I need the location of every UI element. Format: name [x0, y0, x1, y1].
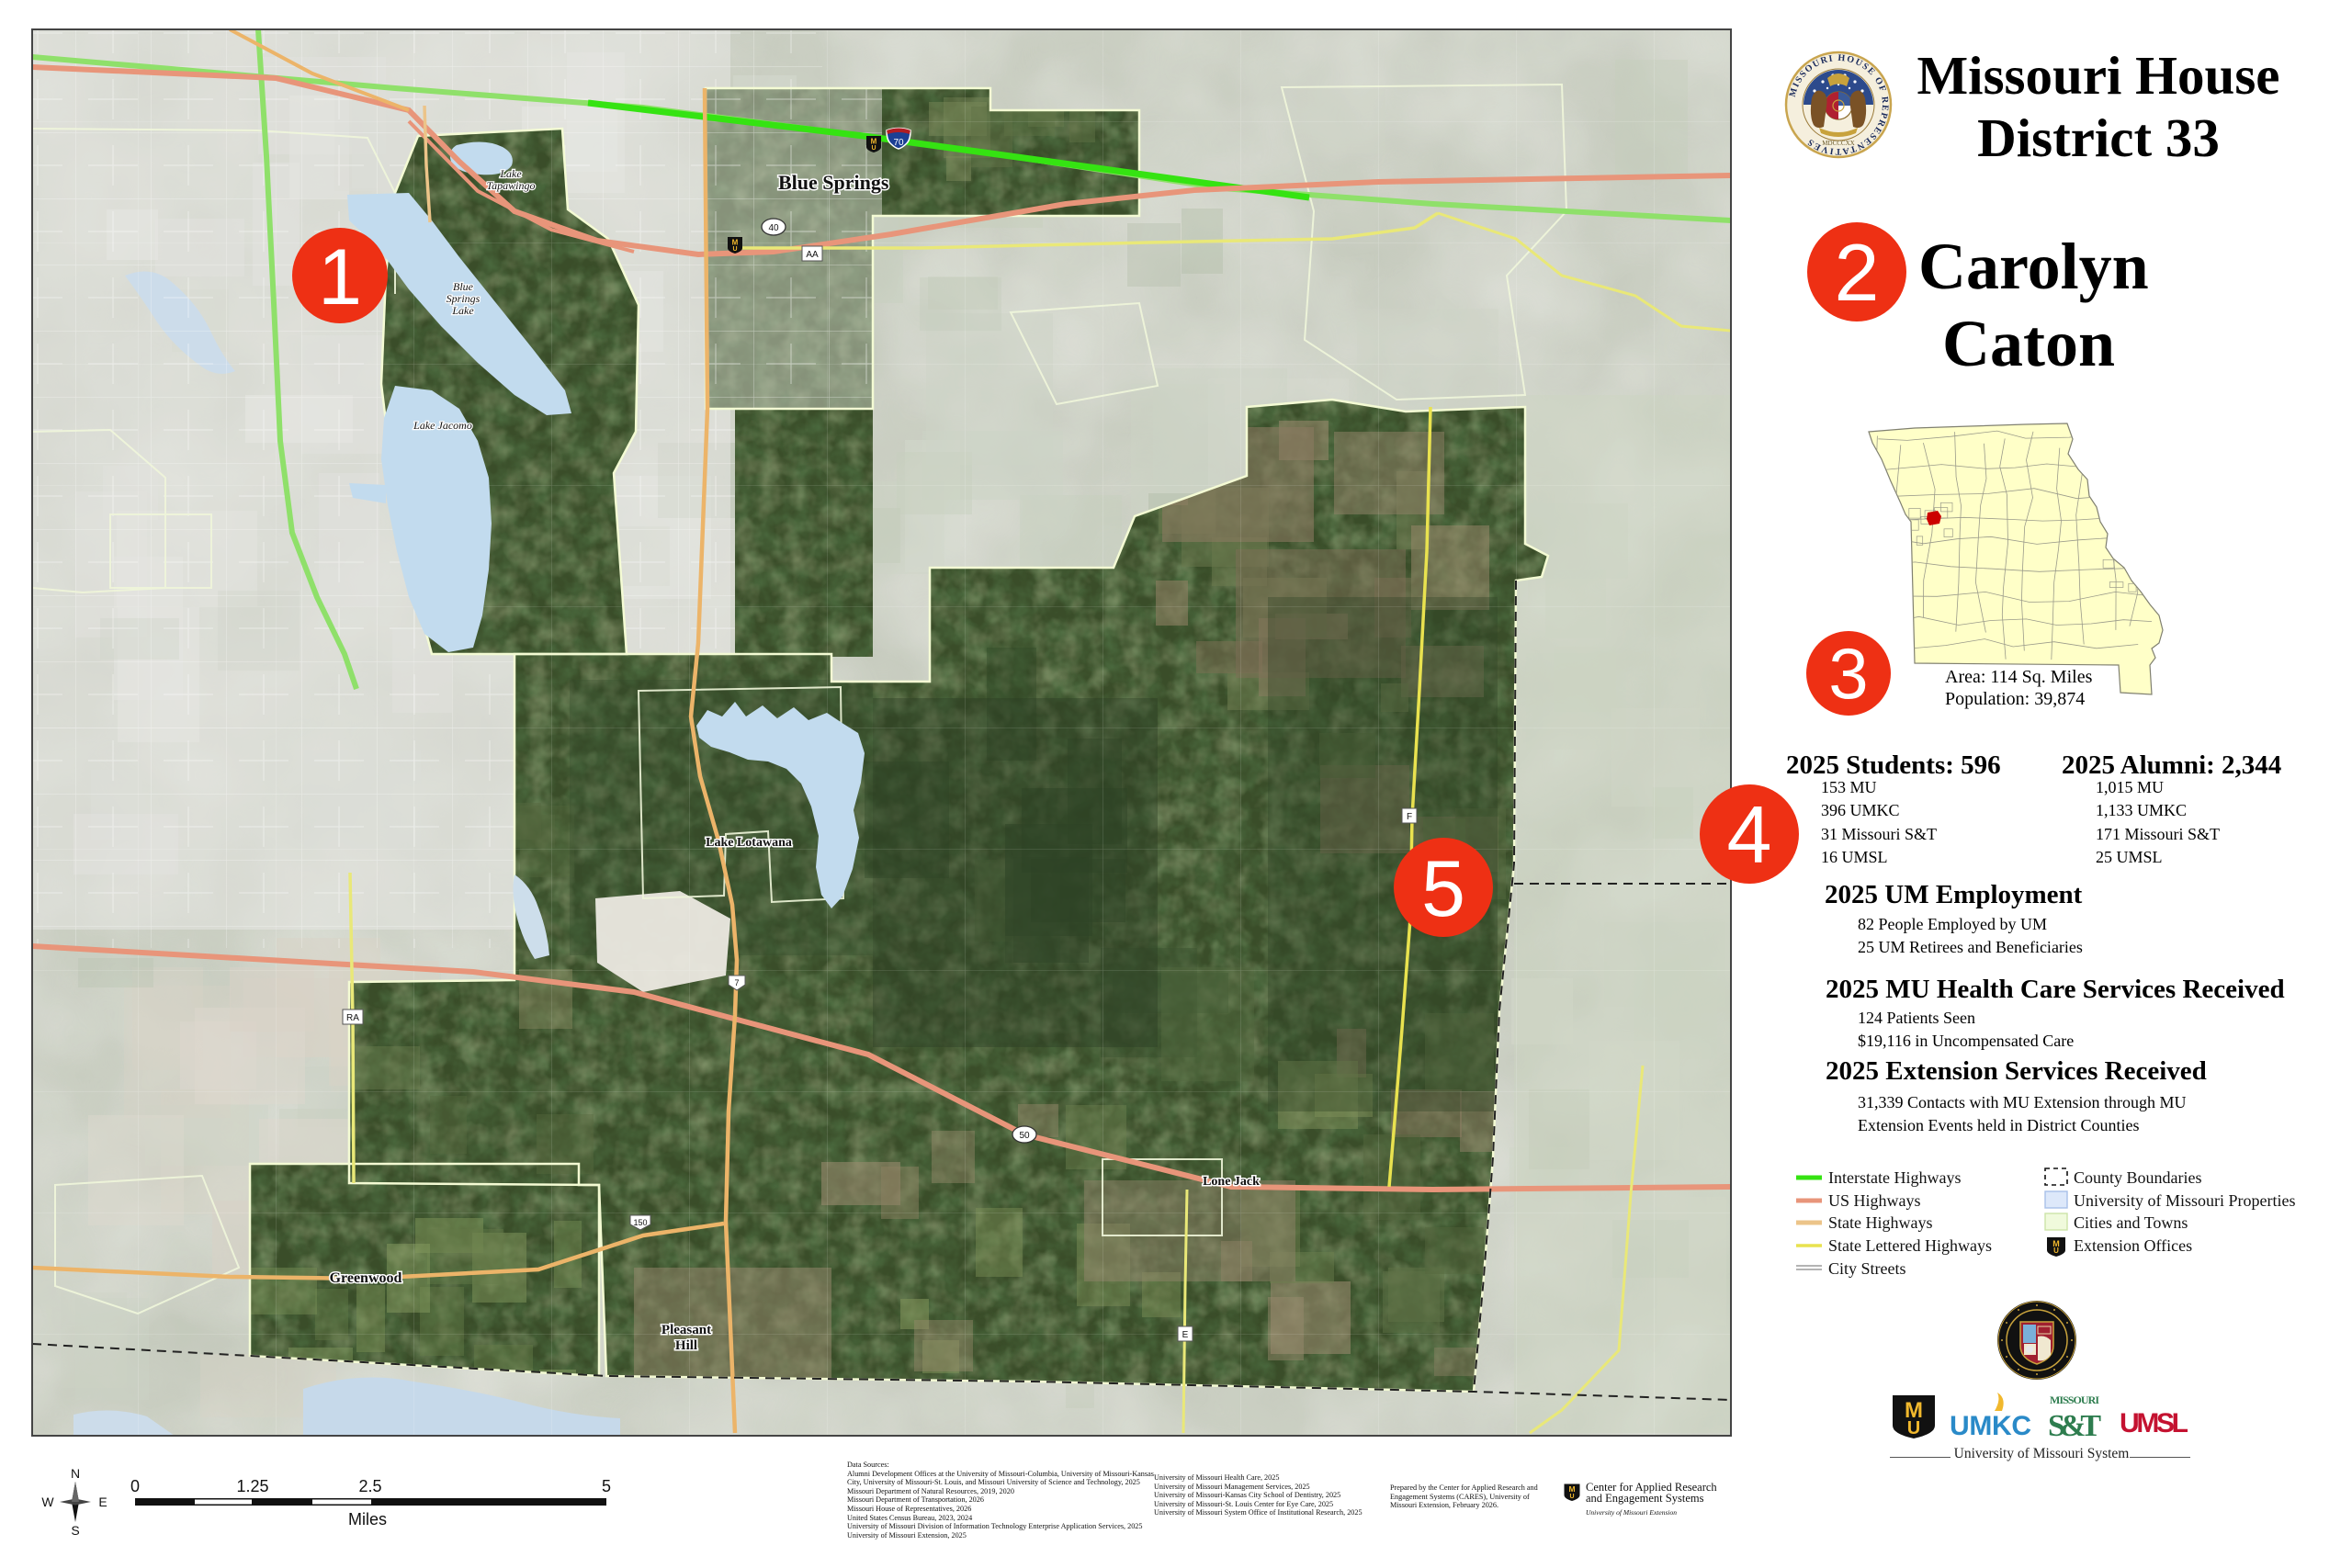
svg-text:Pleasant: Pleasant — [661, 1323, 711, 1337]
svg-text:City Streets: City Streets — [1828, 1259, 1906, 1278]
svg-text:U: U — [1569, 1494, 1574, 1500]
svg-text:40: 40 — [768, 223, 779, 233]
svg-text:U: U — [2053, 1247, 2059, 1255]
svg-text:Blue: Blue — [453, 280, 474, 293]
svg-text:5: 5 — [602, 1477, 611, 1495]
svg-text:State Lettered Highways: State Lettered Highways — [1828, 1236, 1992, 1255]
svg-text:0: 0 — [130, 1477, 140, 1495]
svg-text:Blue Springs: Blue Springs — [778, 171, 889, 194]
svg-text:E: E — [98, 1495, 107, 1509]
svg-text:Miles: Miles — [348, 1510, 387, 1529]
svg-text:4: 4 — [1727, 789, 1772, 880]
svg-text:Springs: Springs — [447, 292, 481, 305]
svg-text:Cities and Towns: Cities and Towns — [2074, 1213, 2188, 1232]
svg-text:Lake: Lake — [451, 304, 474, 317]
svg-text:University of Missouri Propert: University of Missouri Properties — [2074, 1191, 2295, 1210]
svg-text:US Highways: US Highways — [1828, 1191, 1921, 1210]
svg-text:MDCCCXX: MDCCCXX — [1822, 140, 1854, 147]
svg-text:F: F — [1407, 812, 1412, 822]
svg-text:Tapawingo: Tapawingo — [487, 179, 536, 192]
svg-text:S&T: S&T — [2048, 1409, 2101, 1443]
svg-text:Lake Lotawana: Lake Lotawana — [706, 836, 792, 850]
svg-text:70: 70 — [893, 138, 904, 148]
svg-text:MISSOURI: MISSOURI — [2050, 1393, 2099, 1406]
svg-text:7: 7 — [734, 978, 739, 987]
svg-text:Interstate Highways: Interstate Highways — [1828, 1168, 1961, 1187]
svg-text:Lone Jack: Lone Jack — [1203, 1175, 1260, 1189]
svg-text:UMKC: UMKC — [1950, 1411, 2031, 1441]
svg-text:County Boundaries: County Boundaries — [2074, 1168, 2202, 1187]
svg-text:S: S — [71, 1523, 79, 1538]
svg-text:Lake Jacomo: Lake Jacomo — [413, 419, 472, 432]
svg-text:1: 1 — [318, 233, 362, 321]
svg-text:AA: AA — [806, 250, 819, 260]
svg-text:2: 2 — [1835, 227, 1880, 318]
svg-text:M: M — [1568, 1484, 1575, 1494]
svg-text:W: W — [41, 1495, 54, 1509]
svg-text:N: N — [71, 1466, 80, 1481]
svg-text:State Highways: State Highways — [1828, 1213, 1932, 1232]
svg-text:5: 5 — [1421, 845, 1465, 933]
svg-text:Hill: Hill — [675, 1338, 697, 1353]
svg-text:2.5: 2.5 — [358, 1477, 381, 1495]
svg-text:RA: RA — [346, 1013, 359, 1023]
svg-text:Greenwood: Greenwood — [330, 1270, 402, 1286]
svg-text:50: 50 — [1019, 1131, 1030, 1141]
svg-text:Lake: Lake — [499, 167, 522, 180]
svg-text:1.25: 1.25 — [236, 1477, 268, 1495]
svg-text:150: 150 — [633, 1218, 647, 1227]
svg-text:E: E — [1182, 1330, 1189, 1340]
svg-text:U: U — [1907, 1418, 1920, 1438]
svg-text:Extension Offices: Extension Offices — [2074, 1236, 2192, 1255]
svg-text:UMSL: UMSL — [2120, 1408, 2188, 1438]
